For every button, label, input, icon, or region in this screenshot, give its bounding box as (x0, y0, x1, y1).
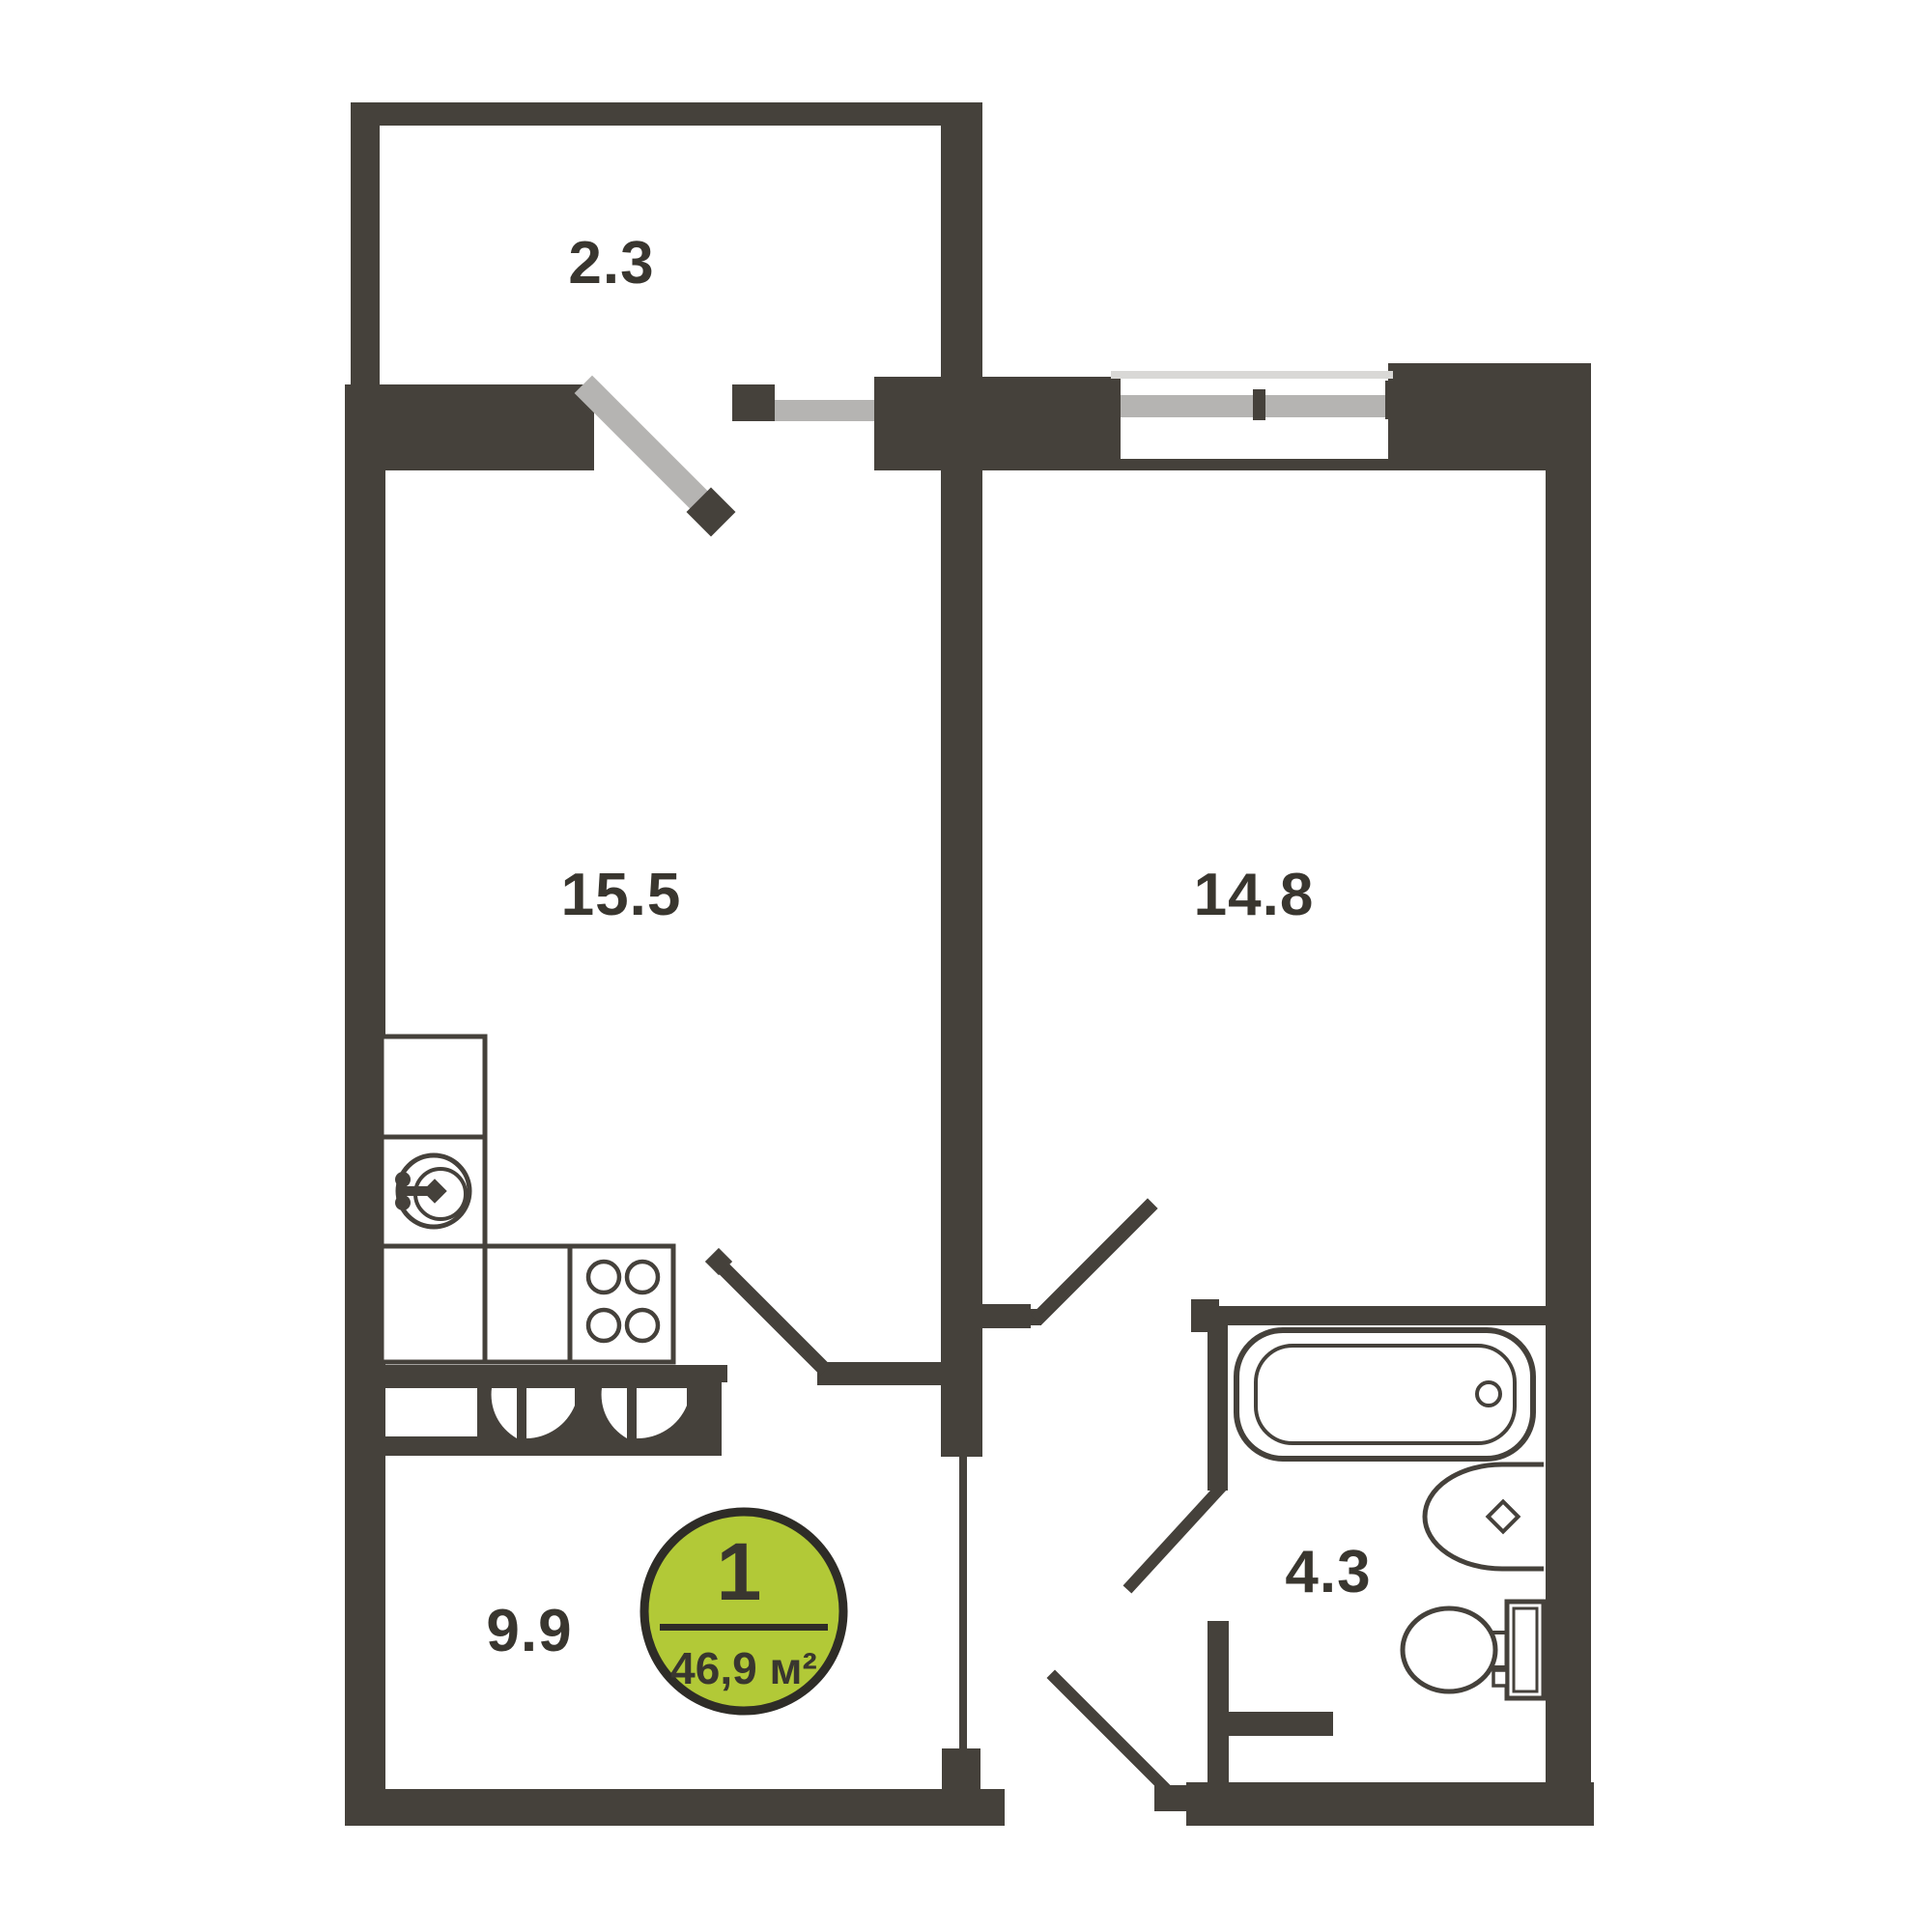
right-outer-wall (1546, 363, 1591, 1826)
toilet-bowl (1403, 1608, 1495, 1691)
wardrobe-end-nub (712, 1365, 727, 1382)
toilet-flush-icon (1493, 1670, 1507, 1686)
wardrobe-cell (385, 1388, 477, 1436)
bottom-wall-left (345, 1789, 1005, 1826)
center-junction-block (874, 377, 1121, 470)
living-window-outer-line (1111, 371, 1393, 379)
kitchen-door-jamb-bar (817, 1362, 941, 1385)
balcony-left-wall (351, 102, 380, 388)
stove-burner-icon (588, 1262, 619, 1293)
toilet-tank-inner (1514, 1608, 1537, 1691)
entrance-door-leaf (1055, 1678, 1177, 1800)
walls (345, 102, 1594, 1826)
floor-plan: 2.3 15.5 14.8 9.9 4.3 1 46,9 м² (0, 0, 1932, 1932)
room-label-kitchen: 15.5 (561, 862, 682, 928)
bath-top-wall (1191, 1306, 1546, 1325)
central-wall (941, 102, 982, 1457)
bathroom-door-leaf (1131, 1491, 1218, 1585)
balcony-door-leaf (592, 393, 702, 503)
living-door-stub (982, 1304, 1031, 1328)
area-badge-rooms-count: 1 (717, 1526, 762, 1617)
balcony-kitchen-wall (345, 384, 594, 470)
hall-opening-pier (942, 1748, 980, 1789)
room-label-bathroom: 4.3 (1285, 1539, 1371, 1605)
kitchen-counter-cell (382, 1246, 485, 1362)
stove-burner-icon (627, 1310, 658, 1341)
bath-partition-stub (1229, 1712, 1333, 1736)
balcony-door-jamb (732, 384, 775, 421)
hall-opening-edge-line (959, 1457, 967, 1748)
area-badge-divider (660, 1624, 828, 1631)
kitchen-fixtures (382, 1037, 673, 1362)
stove-burner-icon (627, 1262, 658, 1293)
kitchen-door-leaf (725, 1270, 820, 1365)
bath-left-wall-lower (1207, 1621, 1229, 1789)
living-window-inner-line (1118, 459, 1388, 470)
floor-plan-canvas: 2.3 15.5 14.8 9.9 4.3 1 46,9 м² (0, 0, 1932, 1932)
living-window-jamb-left (1107, 381, 1121, 419)
area-badge: 1 46,9 м² (644, 1512, 843, 1711)
bath-left-wall-upper (1207, 1306, 1228, 1491)
stove-burner-icon (588, 1310, 619, 1341)
kitchen-stove-cell (570, 1246, 673, 1362)
area-badge-total-area: 46,9 м² (670, 1643, 817, 1693)
room-label-hall: 9.9 (486, 1598, 572, 1664)
balcony-top-wall (351, 102, 980, 126)
bathroom-fixtures (1236, 1330, 1544, 1698)
room-label-balcony: 2.3 (568, 230, 654, 297)
bottom-wall-right (1186, 1782, 1594, 1826)
room-label-living: 14.8 (1194, 862, 1315, 928)
living-window-jamb-right (1385, 381, 1399, 419)
bathtub-drain-icon (1477, 1382, 1500, 1406)
living-window-mullion (1253, 389, 1265, 420)
kitchen-cabinet (382, 1037, 485, 1137)
wardrobe-partition (379, 1365, 727, 1456)
bath-sink (1425, 1464, 1544, 1569)
living-door-leaf (1041, 1208, 1148, 1315)
balcony-window-sill (775, 400, 874, 421)
kitchen-counter-cell (485, 1246, 570, 1362)
